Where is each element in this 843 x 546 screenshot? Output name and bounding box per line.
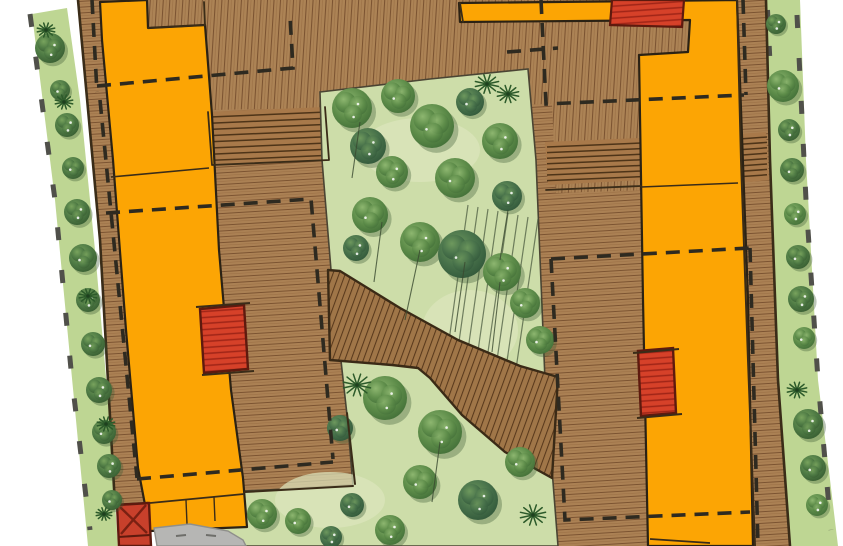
palm-center	[485, 82, 489, 86]
tree-canopy-lobe	[72, 210, 84, 222]
blossom-speckle	[53, 44, 56, 47]
blossom-speckle	[56, 90, 59, 93]
site-plan-svg	[0, 0, 843, 546]
tree-canopy-lobe	[493, 138, 509, 154]
tree-canopy-lobe	[391, 93, 406, 108]
tree-canopy-lobe	[501, 194, 515, 208]
blossom-speckle	[425, 128, 428, 131]
blossom-speckle	[392, 97, 395, 100]
tree-canopy-lobe	[772, 23, 781, 32]
blossom-speckle	[390, 535, 393, 538]
tree-canopy-lobe	[88, 342, 99, 353]
palm-center	[506, 92, 510, 96]
tree-canopy-lobe	[77, 256, 90, 269]
tree-canopy-lobe	[62, 123, 73, 134]
blossom-speckle	[520, 304, 523, 307]
blossom-speckle	[50, 53, 53, 56]
blossom-speckle	[356, 253, 359, 256]
blossom-speckle	[385, 407, 388, 410]
tree-canopy-lobe	[791, 212, 801, 222]
tree-canopy-lobe	[335, 426, 347, 438]
blossom-speckle	[108, 500, 111, 503]
blossom-speckle	[111, 462, 114, 465]
blossom-speckle	[78, 259, 81, 262]
blossom-speckle	[357, 103, 360, 106]
blossom-speckle	[368, 153, 371, 156]
blossom-speckle	[420, 250, 423, 253]
blossom-speckle	[502, 279, 505, 282]
tree-canopy-lobe	[470, 497, 488, 515]
blossom-speckle	[500, 148, 503, 151]
tree-canopy-lobe	[802, 422, 816, 436]
blossom-speckle	[89, 345, 92, 348]
blossom-speckle	[67, 129, 70, 132]
blossom-speckle	[348, 506, 351, 509]
tree-canopy-lobe	[108, 499, 117, 508]
blossom-speckle	[791, 127, 794, 130]
tree-canopy-lobe	[413, 479, 428, 494]
blossom-speckle	[80, 208, 83, 211]
blossom-speckle	[795, 218, 798, 221]
blossom-speckle	[449, 180, 452, 183]
tree-canopy-lobe	[347, 503, 358, 514]
blossom-speckle	[293, 522, 296, 525]
blossom-speckle	[396, 168, 399, 171]
tree-canopy-lobe	[351, 246, 363, 258]
palm-center	[44, 28, 48, 32]
tree-canopy-lobe	[363, 212, 379, 228]
palm-center	[86, 294, 90, 298]
tree-canopy-lobe	[519, 301, 533, 315]
tree-canopy-lobe	[94, 388, 106, 400]
tree-canopy-lobe	[464, 100, 477, 113]
tree-canopy-lobe	[800, 336, 810, 346]
blossom-speckle	[77, 217, 80, 220]
tree-canopy-lobe	[452, 250, 474, 272]
blossom-speckle	[425, 237, 428, 240]
blossom-speckle	[99, 395, 102, 398]
blossom-speckle	[808, 469, 811, 472]
blossom-speckle	[483, 495, 486, 498]
tree-canopy-lobe	[69, 166, 79, 176]
blossom-speckle	[510, 192, 513, 195]
tree-canopy-lobe	[56, 89, 65, 98]
blossom-speckle	[817, 509, 820, 512]
blossom-speckle	[335, 429, 338, 432]
blossom-speckle	[478, 508, 481, 511]
tree-canopy-lobe	[787, 168, 798, 179]
tree-canopy-lobe	[431, 429, 451, 449]
blossom-speckle	[808, 429, 811, 432]
blossom-speckle	[789, 134, 792, 137]
blossom-speckle	[100, 433, 103, 436]
palm-center	[531, 513, 535, 517]
blossom-speckle	[506, 267, 509, 270]
blossom-speckle	[262, 519, 265, 522]
blossom-speckle	[333, 534, 336, 537]
blossom-speckle	[801, 304, 804, 307]
tree-canopy-lobe	[386, 170, 400, 184]
tree-canopy-lobe	[44, 46, 58, 60]
blossom-speckle	[788, 171, 791, 174]
blossom-speckle	[331, 541, 334, 544]
red-stair-west	[200, 305, 248, 373]
blossom-speckle	[515, 463, 518, 466]
blossom-speckle	[414, 483, 417, 486]
blossom-speckle	[102, 386, 105, 389]
red-stair-east	[638, 348, 676, 416]
palm-center	[795, 388, 799, 392]
blossom-speckle	[88, 304, 91, 307]
blossom-speckle	[69, 168, 72, 171]
tree-canopy-lobe	[813, 503, 823, 513]
blossom-speckle	[359, 244, 362, 247]
blossom-speckle	[352, 116, 355, 119]
blossom-speckle	[372, 141, 375, 144]
palm-center	[104, 422, 108, 426]
tree-canopy-lobe	[808, 466, 820, 478]
palm-center	[102, 512, 106, 516]
tree-canopy-lobe	[777, 84, 791, 98]
tree-canopy-lobe	[423, 123, 443, 143]
tree-canopy-lobe	[327, 535, 337, 545]
tree-canopy-lobe	[293, 519, 305, 531]
blossom-speckle	[535, 341, 538, 344]
blossom-speckle	[393, 526, 396, 529]
tree-canopy-lobe	[361, 143, 377, 159]
blossom-speckle	[794, 258, 797, 261]
blossom-speckle	[811, 420, 814, 423]
tree-canopy-lobe	[494, 269, 511, 286]
blossom-speckle	[445, 426, 448, 429]
blossom-speckle	[455, 256, 458, 259]
blossom-speckle	[819, 502, 822, 505]
red-stair-top	[610, 0, 684, 27]
tree-canopy-lobe	[99, 430, 110, 441]
tree-canopy-lobe	[412, 239, 430, 257]
blossom-speckle	[507, 201, 510, 204]
blossom-speckle	[69, 121, 72, 124]
blossom-speckle	[800, 338, 803, 341]
tree-canopy-lobe	[793, 255, 804, 266]
blossom-speckle	[778, 21, 781, 24]
blossom-speckle	[364, 216, 367, 219]
blossom-speckle	[392, 178, 395, 181]
utility-box-group	[117, 503, 151, 546]
site-plan-stage	[0, 0, 843, 546]
blossom-speckle	[390, 392, 393, 395]
blossom-speckle	[804, 295, 807, 298]
blossom-speckle	[109, 470, 112, 473]
palm-center	[62, 100, 66, 104]
blossom-speckle	[776, 27, 779, 30]
tree-canopy-lobe	[785, 128, 795, 138]
tree-canopy-lobe	[534, 338, 547, 351]
tree-canopy-lobe	[376, 395, 396, 415]
tree-canopy-lobe	[344, 105, 362, 123]
blossom-speckle	[797, 211, 800, 214]
tree-canopy-lobe	[796, 297, 808, 309]
palm-center	[355, 383, 359, 387]
tree-canopy-lobe	[447, 175, 465, 193]
blossom-speckle	[465, 103, 468, 106]
blossom-speckle	[778, 87, 781, 90]
blossom-speckle	[265, 510, 268, 513]
tree-canopy-lobe	[514, 460, 528, 474]
tree-canopy-lobe	[256, 512, 270, 526]
tree-canopy-lobe	[384, 528, 398, 542]
blossom-speckle	[440, 441, 443, 444]
tree-canopy-lobe	[104, 464, 115, 475]
blossom-speckle	[504, 136, 507, 139]
